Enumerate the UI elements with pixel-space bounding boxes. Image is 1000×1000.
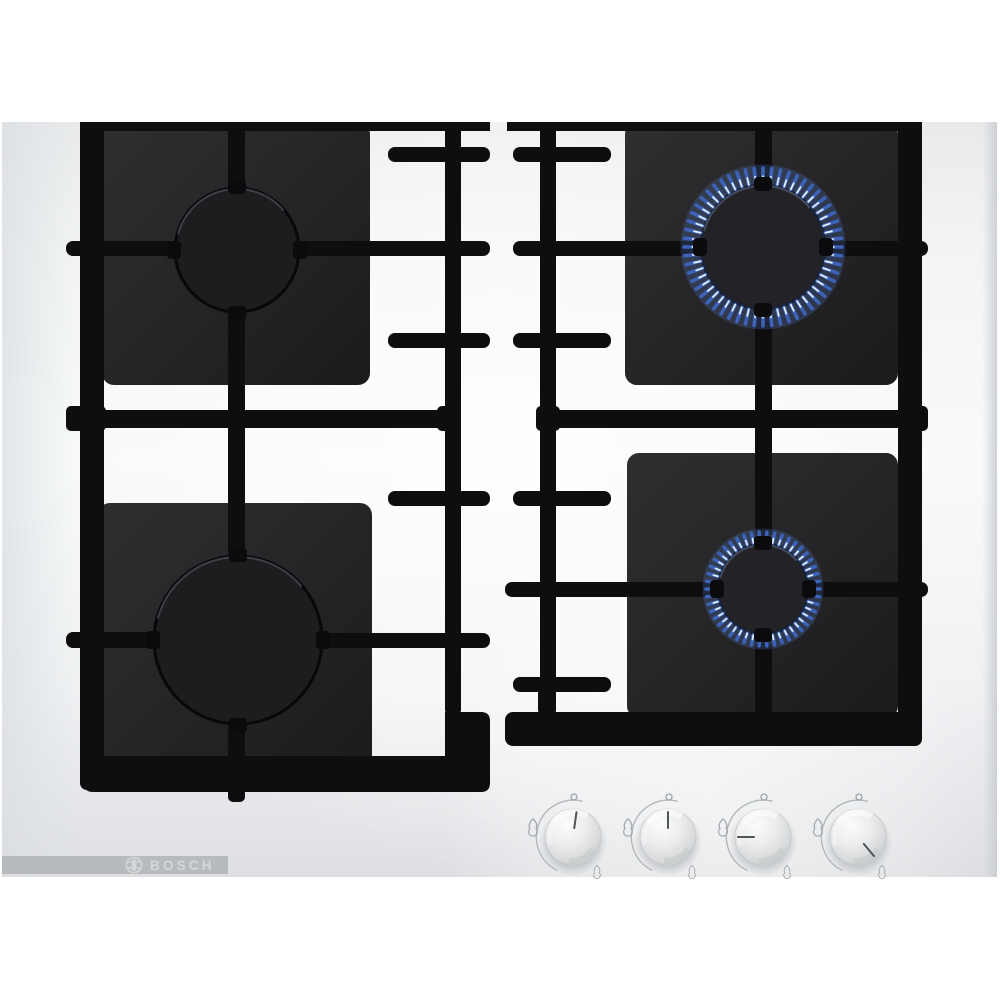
bosch-logo-text: BOSCH	[150, 858, 215, 873]
burner-back-right	[684, 168, 842, 326]
product-image: BOSCH	[0, 0, 1000, 1000]
bosch-logo-strip: BOSCH	[2, 856, 228, 874]
burner-front-right	[706, 532, 820, 646]
gas-hob-photo: BOSCH	[0, 0, 1000, 1000]
